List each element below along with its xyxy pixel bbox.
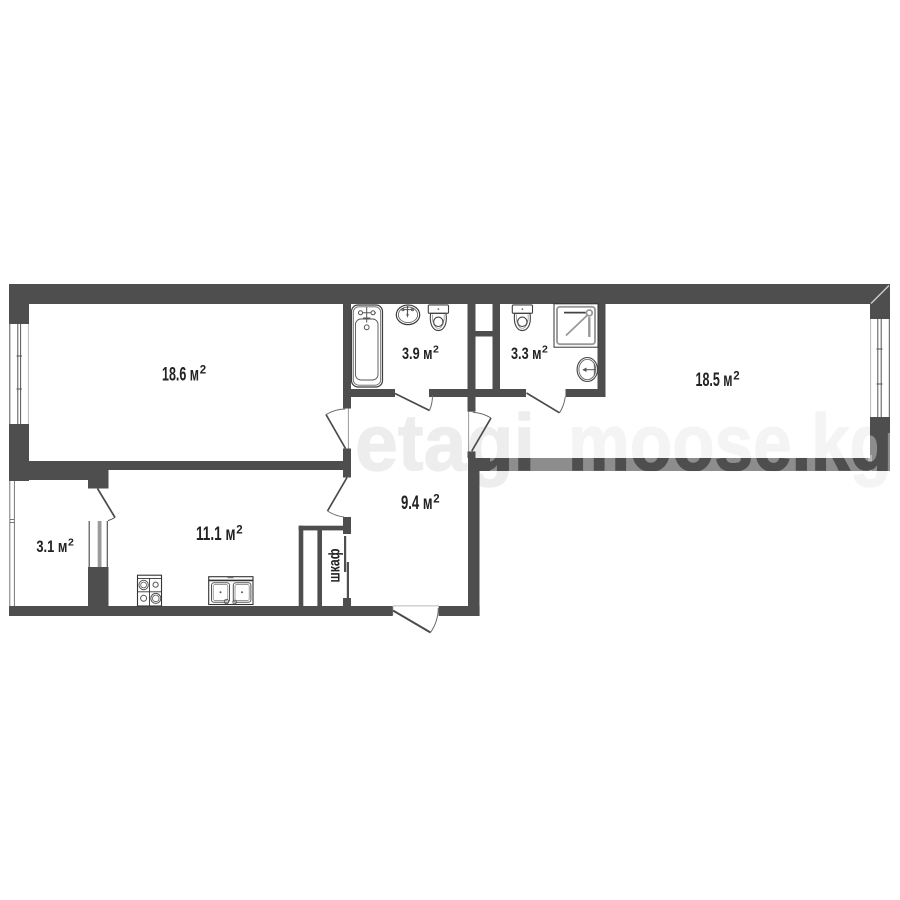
svg-text:3.1 м: 3.1 м bbox=[36, 537, 67, 556]
svg-text:2: 2 bbox=[68, 537, 74, 549]
svg-text:2: 2 bbox=[433, 494, 439, 506]
svg-text:9.4 м: 9.4 м bbox=[401, 492, 433, 514]
svg-text:2: 2 bbox=[236, 525, 242, 537]
svg-text:3.3 м: 3.3 м bbox=[511, 344, 542, 363]
svg-text:18.5 м: 18.5 м bbox=[696, 369, 733, 391]
svg-text:18.6 м: 18.6 м bbox=[162, 364, 199, 386]
svg-text:2: 2 bbox=[200, 365, 206, 377]
svg-text:2: 2 bbox=[542, 344, 548, 356]
svg-text:2: 2 bbox=[733, 371, 739, 383]
svg-text:шкаф: шкаф bbox=[327, 549, 344, 583]
svg-text:2: 2 bbox=[433, 344, 439, 356]
svg-text:11.1 м: 11.1 м bbox=[196, 523, 236, 545]
svg-text:3.9 м: 3.9 м bbox=[402, 344, 433, 363]
